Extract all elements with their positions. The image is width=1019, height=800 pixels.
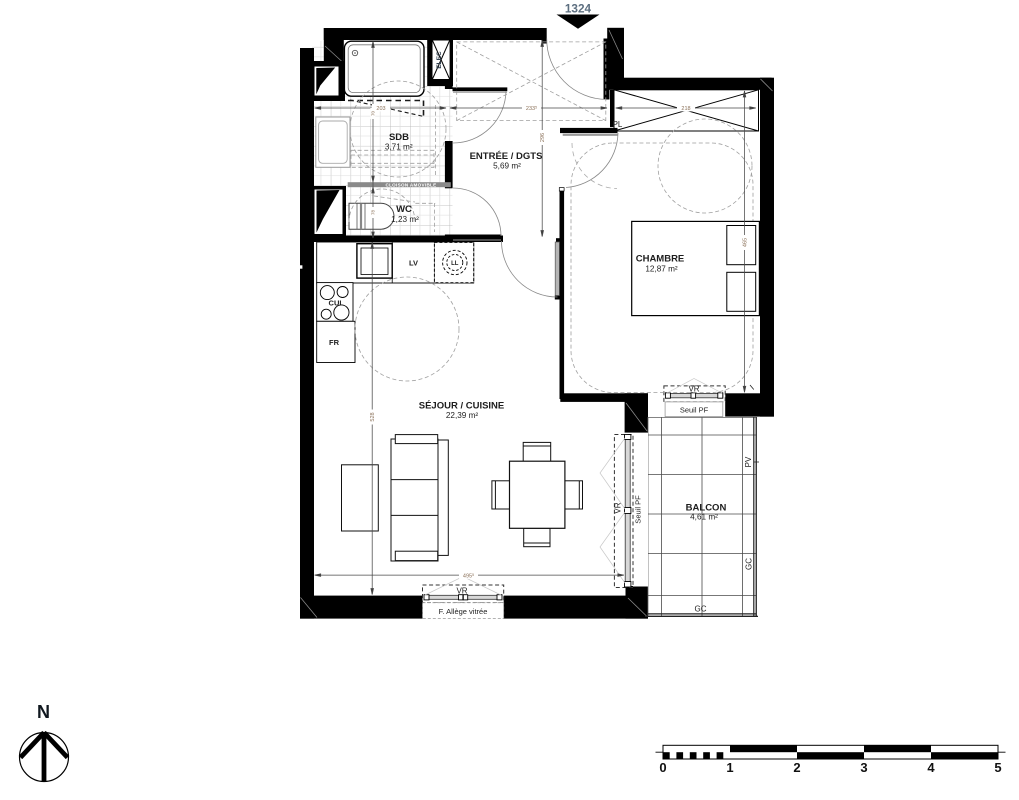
svg-text:VR: VR (456, 587, 467, 596)
svg-text:F. Allège vitrée: F. Allège vitrée (439, 607, 488, 616)
svg-text:PV: PV (744, 456, 753, 467)
svg-text:ELEC: ELEC (436, 51, 443, 69)
svg-text:LL: LL (451, 261, 459, 267)
svg-text:SDB: SDB (389, 132, 409, 143)
svg-text:203: 203 (376, 106, 385, 112)
svg-text:78: 78 (371, 210, 376, 216)
svg-text:465: 465 (743, 238, 749, 247)
svg-text:GC: GC (745, 558, 754, 570)
svg-text:CHAMBRE: CHAMBRE (636, 254, 685, 265)
svg-text:Seuil PF: Seuil PF (680, 406, 709, 415)
svg-text:12,87 m²: 12,87 m² (645, 265, 678, 274)
svg-text:SÉJOUR / CUISINE: SÉJOUR / CUISINE (419, 401, 505, 412)
svg-text:3,71 m²: 3,71 m² (385, 143, 413, 152)
svg-text:296: 296 (540, 133, 546, 142)
svg-text:CLOISON AMOVIBLE: CLOISON AMOVIBLE (385, 182, 436, 187)
svg-text:LV: LV (409, 258, 418, 267)
svg-text:GC: GC (695, 605, 707, 614)
svg-text:4: 4 (927, 760, 935, 775)
svg-text:Seuil PF: Seuil PF (634, 495, 643, 524)
svg-text:22,39 m²: 22,39 m² (446, 411, 479, 420)
svg-text:FR: FR (329, 338, 340, 347)
svg-text:CUI: CUI (329, 298, 342, 307)
svg-text:528: 528 (370, 412, 376, 421)
svg-text:N: N (37, 702, 50, 722)
svg-text:ENTRÉE / DGTS: ENTRÉE / DGTS (470, 151, 543, 162)
svg-text:1324: 1324 (565, 2, 592, 16)
svg-text:VR: VR (614, 502, 623, 513)
svg-text:218: 218 (681, 106, 690, 112)
svg-text:3: 3 (860, 760, 867, 775)
svg-text:4,61 m²: 4,61 m² (690, 513, 718, 522)
svg-text:PL: PL (613, 120, 623, 129)
svg-text:70: 70 (371, 111, 376, 117)
svg-text:0: 0 (659, 760, 666, 775)
svg-text:2: 2 (793, 760, 800, 775)
svg-text:1: 1 (726, 760, 733, 775)
svg-text:5,69 m²: 5,69 m² (493, 162, 521, 171)
svg-text:1,23 m²: 1,23 m² (391, 215, 419, 224)
svg-text:WC: WC (396, 204, 412, 215)
svg-text:5: 5 (994, 760, 1001, 775)
